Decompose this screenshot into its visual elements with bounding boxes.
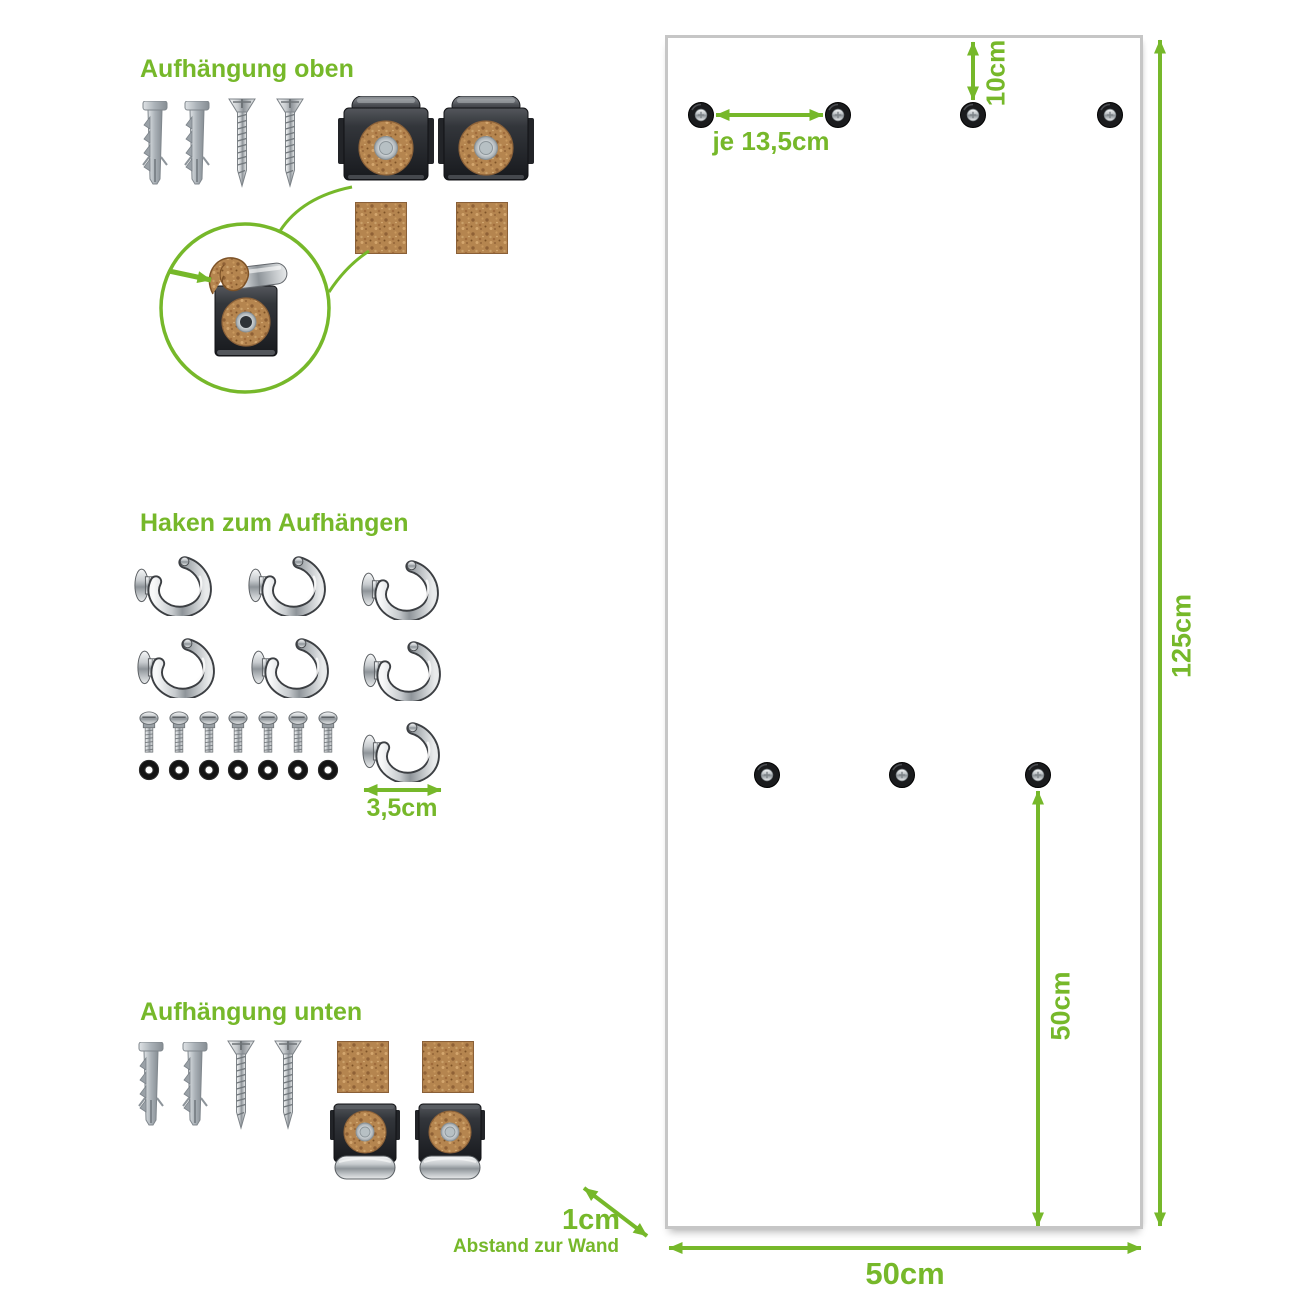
bolt-icon xyxy=(138,711,160,755)
installation-diagram: Aufhängung oben Haken zum Aufhängen xyxy=(0,0,1300,1300)
cork-pad-icon xyxy=(355,202,407,254)
cork-clip-bottom-icon xyxy=(330,1102,400,1182)
cork-pad-icon xyxy=(337,1041,389,1093)
screw-icon xyxy=(226,1040,256,1130)
cork-pad-icon xyxy=(456,202,508,254)
section-title-bottom-mount: Aufhängung unten xyxy=(140,998,362,1027)
mounting-board xyxy=(665,35,1143,1229)
wall-plug-icon xyxy=(142,101,168,187)
dim-label-height: 125cm xyxy=(1167,594,1198,678)
washer-icon xyxy=(317,759,339,781)
washer-icon xyxy=(287,759,309,781)
drill-hole-icon xyxy=(888,761,916,789)
hook-icon xyxy=(250,631,336,698)
wall-plug-icon xyxy=(182,1042,208,1128)
bolt-icon xyxy=(227,711,249,755)
dim-label-wall-gap-caption: Abstand zur Wand xyxy=(453,1236,619,1258)
drill-hole-icon xyxy=(1024,761,1052,789)
wall-plug-icon xyxy=(138,1042,164,1128)
screw-icon xyxy=(273,1040,303,1130)
callout-line-cork-pad xyxy=(329,251,369,292)
washer-icon xyxy=(257,759,279,781)
drill-hole-icon xyxy=(1096,101,1124,129)
cork-clip-bottom-icon xyxy=(415,1102,485,1182)
bolt-icon xyxy=(257,711,279,755)
washer-icon xyxy=(227,759,249,781)
dim-label-wall-gap: 1cm xyxy=(562,1204,620,1237)
cork-pad-icon xyxy=(422,1041,474,1093)
hook-icon xyxy=(247,549,333,616)
hook-icon xyxy=(136,631,222,698)
hook-icon xyxy=(362,634,448,701)
hook-icon xyxy=(361,715,447,782)
bolt-icon xyxy=(287,711,309,755)
cork-clip-icon xyxy=(438,96,534,184)
bolt-icon xyxy=(317,711,339,755)
callout-line-clip xyxy=(280,187,352,231)
bolt-icon xyxy=(198,711,220,755)
screw-icon xyxy=(275,98,305,188)
dim-label-middle-to-bottom: 50cm xyxy=(1046,971,1077,1040)
bolt-icon xyxy=(168,711,190,755)
wall-plug-icon xyxy=(184,101,210,187)
washer-icon xyxy=(168,759,190,781)
washer-icon xyxy=(198,759,220,781)
dim-label-top-offset: 10cm xyxy=(981,40,1012,107)
drill-hole-icon xyxy=(687,101,715,129)
section-title-top-mount: Aufhängung oben xyxy=(140,55,354,84)
dim-label-width: 50cm xyxy=(865,1256,944,1292)
drill-hole-icon xyxy=(824,101,852,129)
hook-icon xyxy=(133,549,219,616)
screw-icon xyxy=(227,98,257,188)
drill-hole-icon xyxy=(753,761,781,789)
washer-icon xyxy=(138,759,160,781)
dim-label-hook-size: 3,5cm xyxy=(367,794,438,823)
cork-clip-icon xyxy=(338,96,434,184)
dim-label-top-spacing: je 13,5cm xyxy=(712,126,829,157)
section-title-hooks: Haken zum Aufhängen xyxy=(140,509,409,538)
cork-clip-detail-icon xyxy=(193,246,298,371)
hook-icon xyxy=(360,553,446,620)
